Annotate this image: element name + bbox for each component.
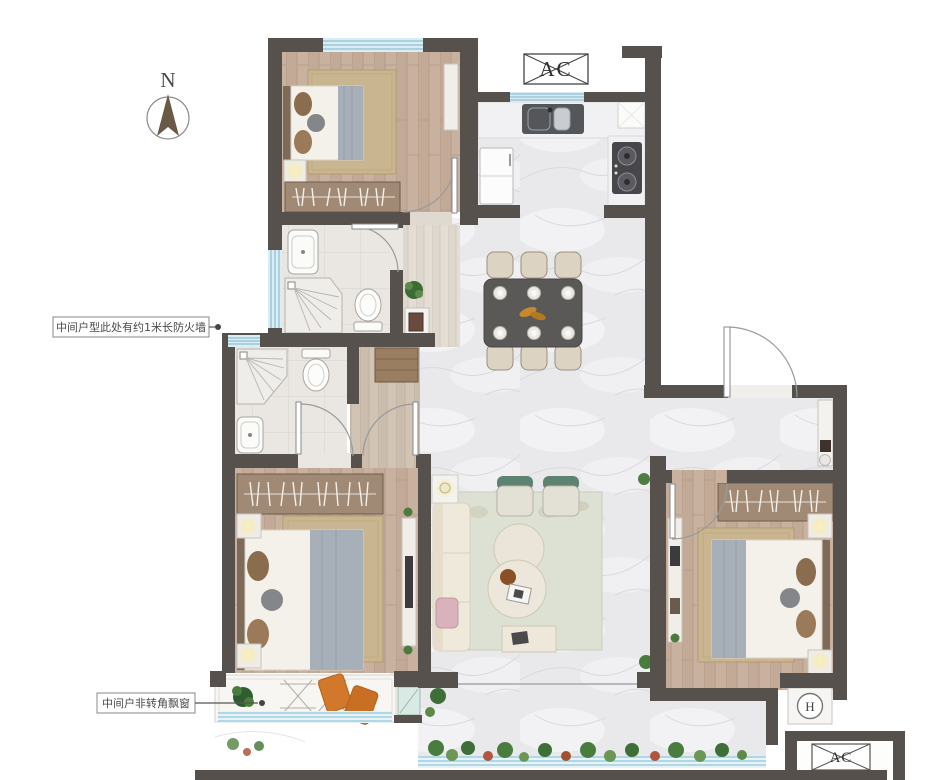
- toilet: [354, 289, 382, 331]
- plant: [671, 634, 680, 643]
- kitchen-opening: [520, 205, 604, 218]
- floor-plan-canvas: AC H AC N 中间户型此处有约1米长防火墙 中间户非转角飘窗: [0, 0, 938, 780]
- leader-dot: [215, 324, 221, 330]
- entry-hall-floor: [655, 392, 835, 472]
- water-heater-label: H: [805, 699, 814, 714]
- plant: [404, 508, 413, 517]
- nightstand-lamp: [238, 516, 258, 536]
- decor-item: [820, 455, 831, 466]
- bed: [712, 540, 830, 658]
- outside-garden: [215, 732, 305, 756]
- fridge: [480, 148, 513, 204]
- wardrobe: [237, 474, 383, 514]
- nightstand-lamp: [285, 161, 305, 181]
- leader-dot: [259, 700, 265, 706]
- plant: [405, 281, 423, 299]
- armchair: [497, 476, 533, 516]
- sofa: [433, 503, 470, 651]
- floor-lamp: [432, 475, 458, 503]
- bathroom-sink: [288, 230, 318, 274]
- shower: [285, 278, 342, 333]
- ac-bottom-label: AC: [830, 750, 853, 766]
- window-bathroom-bottom: [228, 335, 260, 347]
- nightstand-lamp: [238, 645, 258, 665]
- annotation-firewall: 中间户型此处有约1米长防火墙: [53, 317, 221, 337]
- ac-badge-bottom: AC: [812, 744, 870, 770]
- balcony-railing: [418, 756, 766, 768]
- wardrobe: [285, 182, 400, 212]
- desk: [444, 64, 458, 130]
- tv-bench: [502, 626, 556, 652]
- ac-top-label: AC: [539, 57, 572, 81]
- firewall-note: 中间户型此处有约1米长防火墙: [56, 320, 206, 334]
- nightstand-lamp: [810, 516, 830, 536]
- coffee-table: [488, 524, 546, 618]
- stove: [612, 142, 642, 194]
- armchair: [543, 476, 579, 516]
- floor-plan: AC H AC N 中间户型此处有约1米长防火墙 中间户非转角飘窗: [0, 0, 938, 780]
- hall-dresser: [375, 348, 418, 382]
- plant: [638, 473, 650, 485]
- entry-door: [724, 327, 797, 398]
- bay-window-note: 中间户非转角飘窗: [102, 696, 190, 710]
- decor-item: [820, 440, 831, 452]
- north-compass: N: [147, 68, 189, 139]
- nightstand-lamp: [810, 651, 830, 671]
- window-kitchen: [510, 92, 584, 102]
- corner-glass: [398, 687, 420, 715]
- bay-window: [215, 673, 420, 726]
- pink-pillow: [436, 598, 458, 628]
- ac-badge-top: AC: [524, 54, 588, 84]
- entry-hall: [818, 400, 833, 466]
- north-label: N: [160, 68, 175, 92]
- north-arrow-icon: [157, 94, 179, 136]
- water-heater-badge: H: [798, 694, 823, 719]
- bottom-crop-bar: [195, 770, 887, 780]
- dining-area: [484, 252, 582, 370]
- plant: [404, 646, 413, 655]
- bed: [283, 86, 363, 160]
- window-bathroom-top: [268, 250, 282, 328]
- corner-shelf: [618, 102, 645, 128]
- decor-bowl: [500, 569, 516, 585]
- window-bedroom-top: [323, 38, 423, 52]
- bathroom-sink: [237, 417, 263, 453]
- kitchen-sink: [522, 104, 584, 134]
- tv-cabinet: [402, 508, 416, 655]
- toilet: [302, 349, 330, 391]
